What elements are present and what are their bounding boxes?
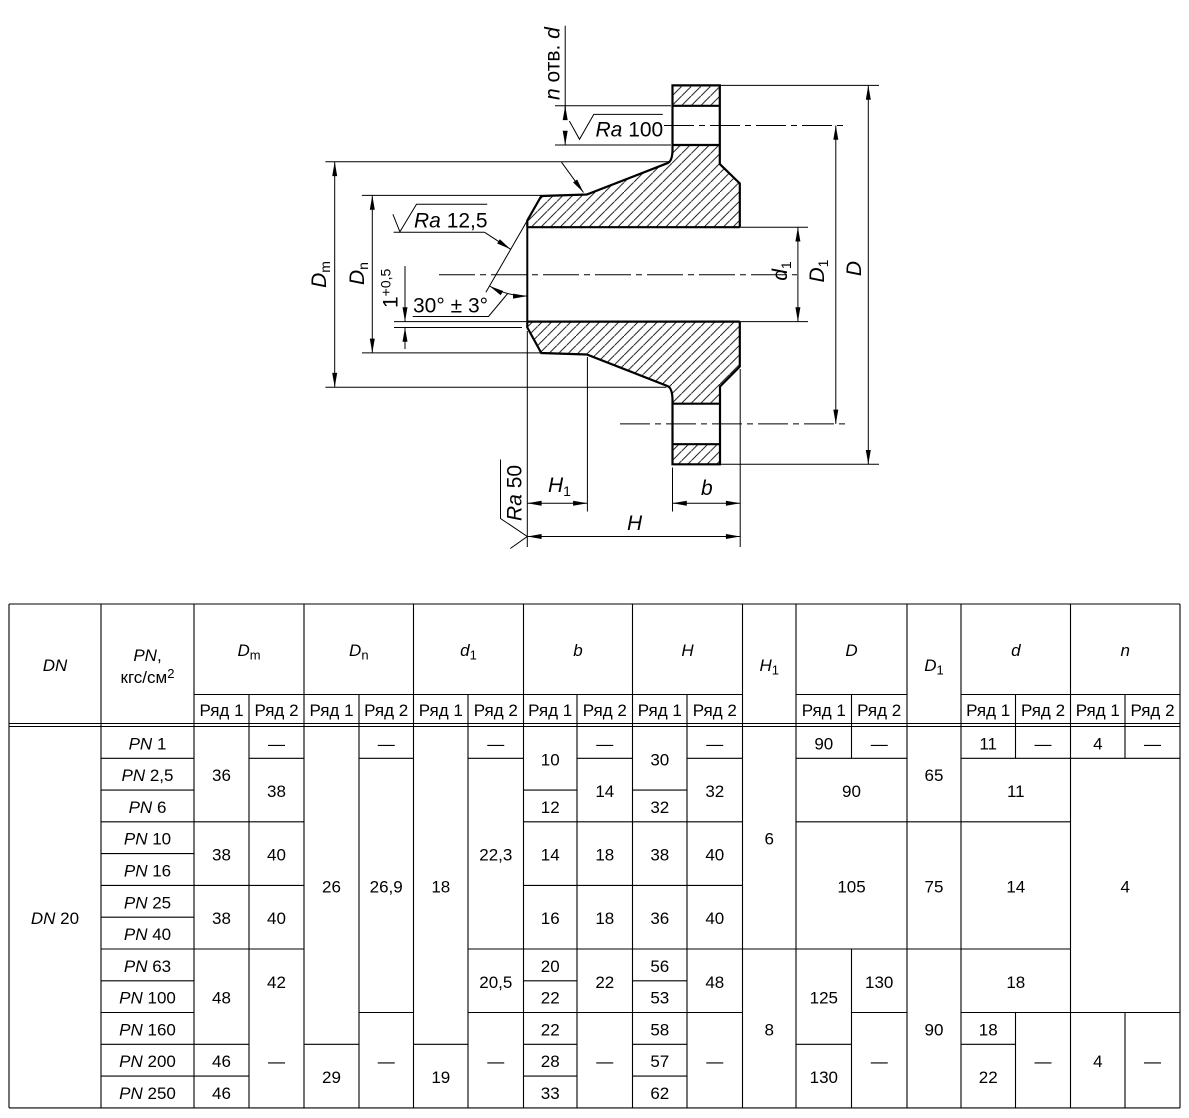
svg-text:4: 4 [1120, 877, 1129, 896]
svg-text:4: 4 [1093, 734, 1102, 753]
svg-text:14: 14 [1006, 877, 1025, 896]
svg-text:30° ± 3°: 30° ± 3° [413, 295, 488, 318]
svg-text:PN 63: PN 63 [124, 957, 171, 976]
svg-text:H1: H1 [759, 656, 779, 678]
svg-text:Dn: Dn [349, 641, 369, 663]
svg-text:—: — [1035, 1052, 1052, 1071]
svg-text:48: 48 [705, 973, 724, 992]
svg-text:кгс/см2: кгс/см2 [121, 666, 175, 687]
svg-text:H1: H1 [548, 474, 571, 499]
svg-text:20: 20 [541, 957, 560, 976]
svg-text:46: 46 [212, 1052, 231, 1071]
svg-text:n: n [1120, 641, 1129, 660]
svg-text:DN: DN [43, 656, 68, 675]
svg-text:30: 30 [650, 750, 669, 769]
svg-text:Ряд 1: Ряд 1 [199, 701, 243, 720]
svg-text:22: 22 [979, 1068, 998, 1087]
svg-text:—: — [871, 1052, 888, 1071]
svg-text:Ряд 2: Ряд 2 [1130, 701, 1174, 720]
svg-text:n отв. d: n отв. d [542, 26, 565, 100]
svg-text:56: 56 [650, 957, 669, 976]
svg-text:18: 18 [431, 877, 450, 896]
svg-text:d: d [1011, 641, 1021, 660]
svg-text:125: 125 [810, 989, 838, 1008]
svg-text:42: 42 [267, 973, 286, 992]
svg-text:—: — [596, 1052, 613, 1071]
svg-text:14: 14 [595, 782, 614, 801]
svg-text:PN 1: PN 1 [129, 734, 167, 753]
svg-text:—: — [487, 1052, 504, 1071]
svg-text:DN 20: DN 20 [31, 909, 79, 928]
svg-text:Ряд 1: Ряд 1 [419, 701, 463, 720]
svg-text:29: 29 [322, 1068, 341, 1087]
svg-text:11: 11 [1007, 782, 1025, 801]
svg-text:Ряд 1: Ряд 1 [966, 701, 1010, 720]
svg-text:48: 48 [212, 989, 231, 1008]
svg-text:8: 8 [764, 1020, 773, 1039]
svg-text:Ряд 2: Ряд 2 [693, 701, 737, 720]
svg-text:90: 90 [814, 734, 833, 753]
svg-text:D1: D1 [924, 656, 944, 678]
svg-text:PN 100: PN 100 [119, 989, 176, 1008]
svg-text:PN 10: PN 10 [124, 830, 171, 849]
svg-text:Dm: Dm [237, 641, 260, 663]
svg-text:PN 250: PN 250 [119, 1084, 176, 1103]
svg-text:Ряд 1: Ряд 1 [1076, 701, 1120, 720]
svg-text:16: 16 [541, 909, 560, 928]
svg-text:20,5: 20,5 [479, 973, 512, 992]
svg-text:Ряд 2: Ряд 2 [364, 701, 408, 720]
svg-text:Ряд 2: Ряд 2 [474, 701, 518, 720]
svg-text:1+0,5: 1+0,5 [378, 268, 403, 308]
svg-text:90: 90 [842, 782, 861, 801]
svg-text:40: 40 [267, 846, 286, 865]
svg-text:PN 16: PN 16 [124, 862, 171, 881]
svg-text:14: 14 [541, 846, 560, 865]
svg-text:22: 22 [541, 1020, 560, 1039]
svg-text:PN 200: PN 200 [119, 1052, 176, 1071]
svg-text:Ra 100: Ra 100 [596, 119, 664, 142]
svg-text:38: 38 [212, 909, 231, 928]
svg-text:—: — [378, 734, 395, 753]
svg-text:D: D [843, 261, 866, 276]
svg-text:19: 19 [431, 1068, 450, 1087]
svg-text:18: 18 [979, 1020, 998, 1039]
svg-text:—: — [268, 734, 285, 753]
svg-text:90: 90 [925, 1020, 944, 1039]
svg-text:b: b [701, 477, 713, 500]
svg-text:40: 40 [705, 846, 724, 865]
svg-text:53: 53 [650, 989, 669, 1008]
svg-text:38: 38 [650, 846, 669, 865]
svg-text:PN 25: PN 25 [124, 893, 171, 912]
svg-text:18: 18 [595, 909, 614, 928]
svg-text:18: 18 [1006, 973, 1025, 992]
svg-text:D1: D1 [806, 259, 831, 282]
svg-text:H: H [681, 641, 694, 660]
svg-text:Ряд 1: Ряд 1 [528, 701, 572, 720]
svg-text:105: 105 [837, 877, 865, 896]
svg-text:26,9: 26,9 [370, 877, 403, 896]
svg-text:Dn: Dn [346, 262, 371, 285]
svg-text:Ряд 2: Ряд 2 [254, 701, 298, 720]
svg-text:—: — [871, 734, 888, 753]
svg-text:D: D [845, 641, 857, 660]
svg-text:38: 38 [267, 782, 286, 801]
svg-text:22: 22 [541, 989, 560, 1008]
svg-text:130: 130 [810, 1068, 838, 1087]
svg-text:33: 33 [541, 1084, 560, 1103]
svg-text:12: 12 [541, 798, 560, 817]
svg-text:—: — [1144, 734, 1161, 753]
svg-text:d1: d1 [769, 261, 794, 281]
svg-text:Ra 12,5: Ra 12,5 [414, 210, 488, 233]
svg-text:—: — [268, 1052, 285, 1071]
svg-text:H: H [627, 512, 643, 535]
svg-text:6: 6 [764, 830, 773, 849]
svg-text:—: — [1035, 734, 1052, 753]
svg-text:46: 46 [212, 1084, 231, 1103]
svg-text:10: 10 [541, 750, 560, 769]
svg-text:Dm: Dm [308, 261, 333, 288]
svg-text:40: 40 [705, 909, 724, 928]
svg-text:PN 160: PN 160 [119, 1020, 176, 1039]
svg-text:Ряд 1: Ряд 1 [638, 701, 682, 720]
svg-text:57: 57 [650, 1052, 669, 1071]
svg-text:PN 6: PN 6 [129, 798, 167, 817]
svg-text:75: 75 [925, 877, 944, 896]
svg-text:26: 26 [322, 877, 341, 896]
svg-text:62: 62 [650, 1084, 669, 1103]
svg-text:58: 58 [650, 1020, 669, 1039]
svg-text:32: 32 [650, 798, 669, 817]
svg-text:Ряд 1: Ряд 1 [309, 701, 353, 720]
svg-text:32: 32 [705, 782, 724, 801]
svg-text:65: 65 [925, 766, 944, 785]
svg-text:—: — [596, 734, 613, 753]
svg-text:Ряд 1: Ряд 1 [802, 701, 846, 720]
svg-text:—: — [706, 1052, 723, 1071]
svg-text:d1: d1 [460, 641, 477, 663]
svg-text:36: 36 [650, 909, 669, 928]
svg-text:Ряд 2: Ряд 2 [1021, 701, 1065, 720]
svg-text:b: b [573, 641, 582, 660]
svg-text:PN,: PN, [133, 646, 161, 665]
svg-text:—: — [706, 734, 723, 753]
svg-text:38: 38 [212, 846, 231, 865]
svg-text:40: 40 [267, 909, 286, 928]
svg-text:28: 28 [541, 1052, 560, 1071]
svg-text:—: — [487, 734, 504, 753]
svg-text:PN 40: PN 40 [124, 925, 171, 944]
svg-text:22: 22 [595, 973, 614, 992]
svg-text:18: 18 [595, 846, 614, 865]
svg-text:Ряд 2: Ряд 2 [857, 701, 901, 720]
svg-text:PN 2,5: PN 2,5 [122, 766, 174, 785]
svg-text:—: — [1144, 1052, 1161, 1071]
svg-text:130: 130 [865, 973, 893, 992]
svg-text:4: 4 [1093, 1052, 1102, 1071]
svg-text:11: 11 [979, 734, 997, 753]
svg-text:—: — [378, 1052, 395, 1071]
svg-text:Ряд 2: Ряд 2 [583, 701, 627, 720]
svg-text:Ra 50: Ra 50 [504, 465, 527, 521]
svg-text:36: 36 [212, 766, 231, 785]
svg-text:22,3: 22,3 [479, 846, 512, 865]
